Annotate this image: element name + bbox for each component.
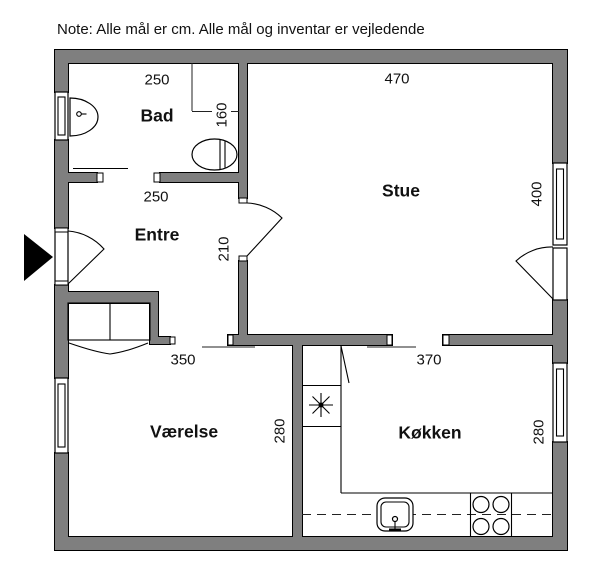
bathroom-sink: [70, 98, 98, 136]
kitchen-counter: [302, 493, 553, 515]
floorplan-drawing: [0, 0, 600, 574]
dim-koekken-width: 370: [416, 353, 441, 368]
dim-entre-wall: 210: [217, 236, 232, 261]
window-stue: [553, 163, 567, 245]
dim-stue-depth: 400: [530, 181, 545, 206]
entre-stue-door-swing: [247, 203, 282, 256]
window-bad: [55, 92, 68, 140]
water-heater-star-icon: [309, 393, 333, 417]
dim-vaerelse-depth: 280: [273, 418, 288, 443]
walls: [55, 50, 567, 550]
room-label-stue: Stue: [382, 182, 420, 200]
dim-stue-width: 470: [384, 72, 409, 87]
stue-door: [516, 247, 567, 300]
entrance-arrow-icon: [24, 234, 53, 281]
dim-vaerelse-width: 350: [170, 353, 195, 368]
technical-closet: [302, 345, 349, 493]
room-label-koekken: Køkken: [398, 424, 461, 442]
entrance-door: [55, 228, 104, 285]
note-text: Note: Alle mål er cm. Alle mål og invent…: [57, 21, 425, 38]
window-koekken: [553, 363, 567, 442]
toilet: [192, 139, 237, 170]
dim-bad-depth: 160: [215, 102, 230, 127]
dim-koekken-depth: 280: [532, 419, 547, 444]
kitchen-sink: [377, 498, 413, 531]
room-label-entre: Entre: [135, 226, 180, 244]
room-label-bad: Bad: [140, 107, 173, 125]
window-vaerelse: [55, 378, 68, 453]
dim-entre-width: 250: [143, 190, 168, 205]
room-label-vaerelse: Værelse: [150, 423, 218, 441]
wardrobe: [68, 303, 150, 354]
dim-bad-width: 250: [144, 73, 169, 88]
floorplan: Note: Alle mål er cm. Alle mål og invent…: [0, 0, 600, 574]
